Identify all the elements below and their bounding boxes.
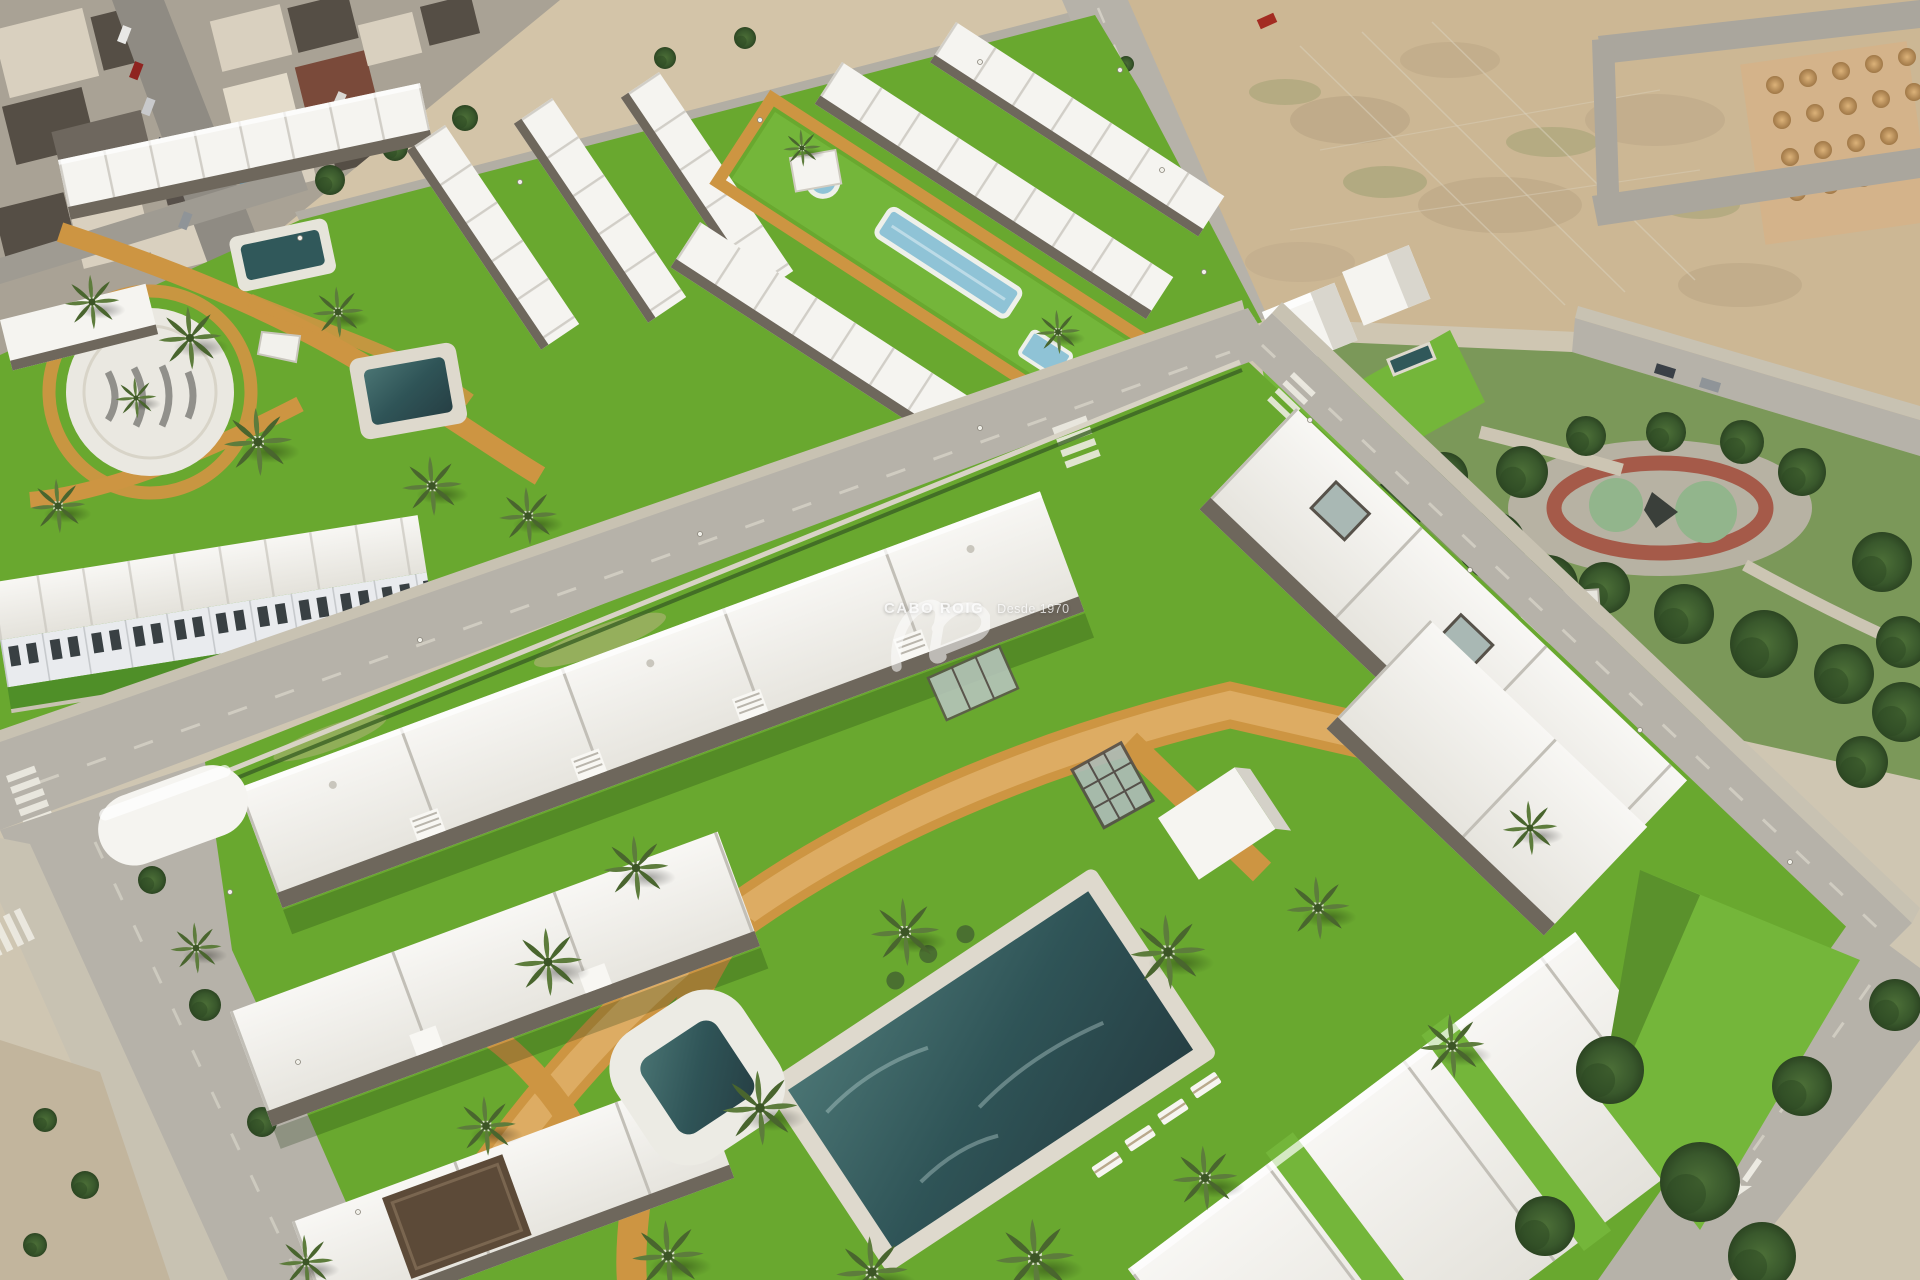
dirt-mound-field — [1740, 41, 1920, 245]
playground-green-circle — [1589, 478, 1643, 532]
tree — [654, 47, 676, 69]
tree — [315, 165, 345, 195]
playground-green-circle — [1675, 481, 1737, 543]
tree — [452, 105, 478, 131]
tree — [734, 27, 756, 49]
aerial-render: CABO ROIG Desde 1970 — [0, 0, 1920, 1280]
scene-svg — [0, 0, 1920, 1280]
